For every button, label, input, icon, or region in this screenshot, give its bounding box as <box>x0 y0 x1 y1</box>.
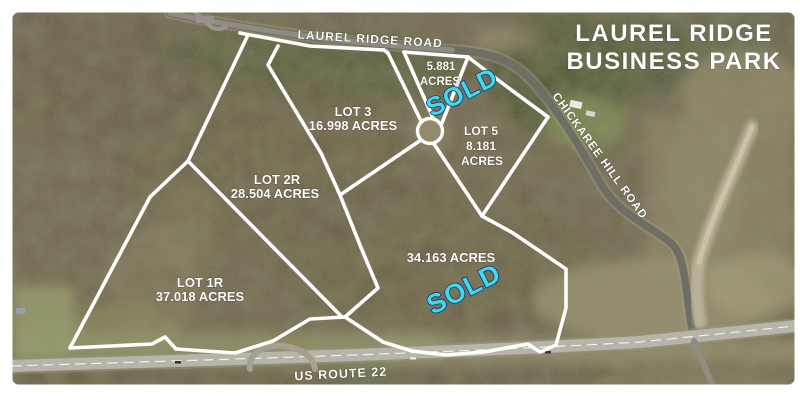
lot5-name: LOT 5 <box>464 124 498 138</box>
lot2r-name: LOT 2R <box>254 172 301 187</box>
lot5-acres-word: ACRES <box>461 154 503 168</box>
lot3-name: LOT 3 <box>335 104 372 119</box>
park-title-line2: BUSINESS PARK <box>566 48 781 75</box>
aerial-map-flyer: LAUREL RIDGE ROAD CHICKAREE HILL ROAD US… <box>0 0 800 400</box>
aerial-photo: LAUREL RIDGE ROAD CHICKAREE HILL ROAD US… <box>0 0 800 400</box>
lot2r-acreage: 28.504 ACRES <box>231 186 320 201</box>
culdesac-circle <box>418 119 443 144</box>
park-title-line1: LAUREL RIDGE <box>575 20 773 47</box>
lot5-acreage: 8.181 <box>466 139 496 153</box>
lot1r-acreage: 37.018 ACRES <box>156 289 245 304</box>
lot1r-name: LOT 1R <box>177 275 224 290</box>
lot-small-acreage: 5.881 <box>427 61 456 73</box>
lot3-acreage: 16.998 ACRES <box>309 118 398 133</box>
